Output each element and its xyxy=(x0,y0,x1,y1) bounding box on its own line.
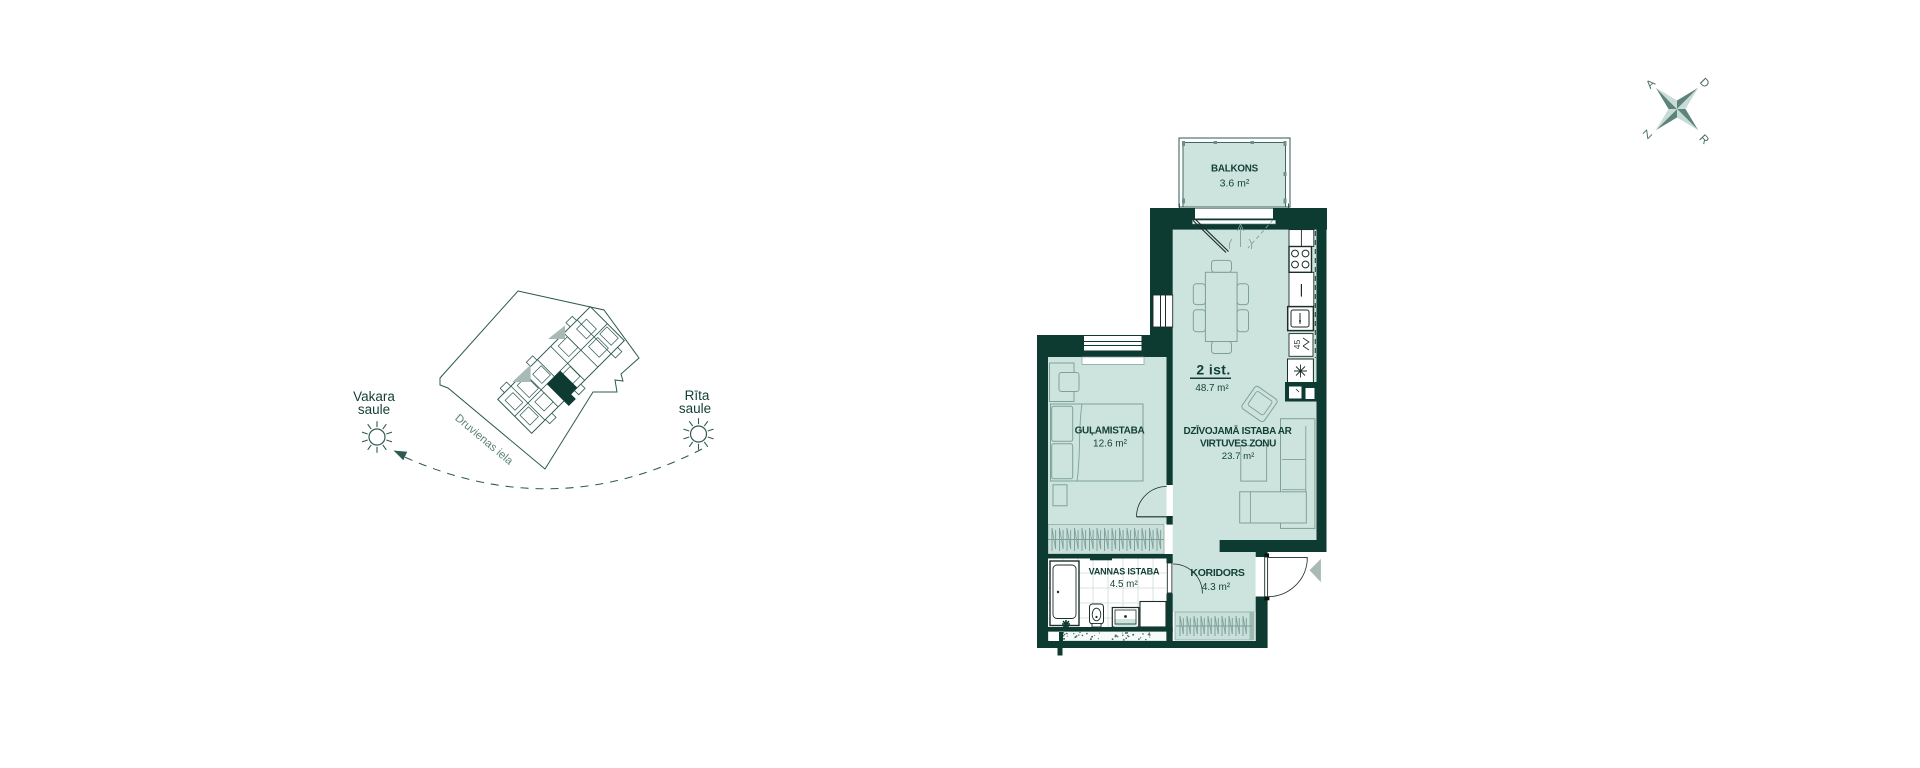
svg-text:saule: saule xyxy=(358,402,390,417)
svg-text:DZĪVOJAMĀ ISTABA AR: DZĪVOJAMĀ ISTABA AR xyxy=(1184,425,1293,437)
svg-text:23.7 m²: 23.7 m² xyxy=(1222,451,1255,462)
svg-text:4.3 m²: 4.3 m² xyxy=(1202,582,1231,593)
svg-text:2 ist.: 2 ist. xyxy=(1196,362,1230,378)
svg-text:BALKONS: BALKONS xyxy=(1211,164,1259,175)
svg-text:3.6 m²: 3.6 m² xyxy=(1220,178,1250,190)
svg-text:KORIDORS: KORIDORS xyxy=(1190,567,1244,579)
svg-text:saule: saule xyxy=(679,401,711,416)
svg-text:VANNAS ISTABA: VANNAS ISTABA xyxy=(1089,567,1160,577)
svg-text:12.6 m²: 12.6 m² xyxy=(1093,439,1128,450)
svg-text:VIRTUVES ZONU: VIRTUVES ZONU xyxy=(1200,439,1276,450)
svg-text:45: 45 xyxy=(1292,340,1302,350)
svg-text:4.5 m²: 4.5 m² xyxy=(1110,579,1139,590)
svg-text:GUĻAMISTABA: GUĻAMISTABA xyxy=(1075,426,1145,437)
svg-text:48.7 m²: 48.7 m² xyxy=(1195,383,1229,394)
